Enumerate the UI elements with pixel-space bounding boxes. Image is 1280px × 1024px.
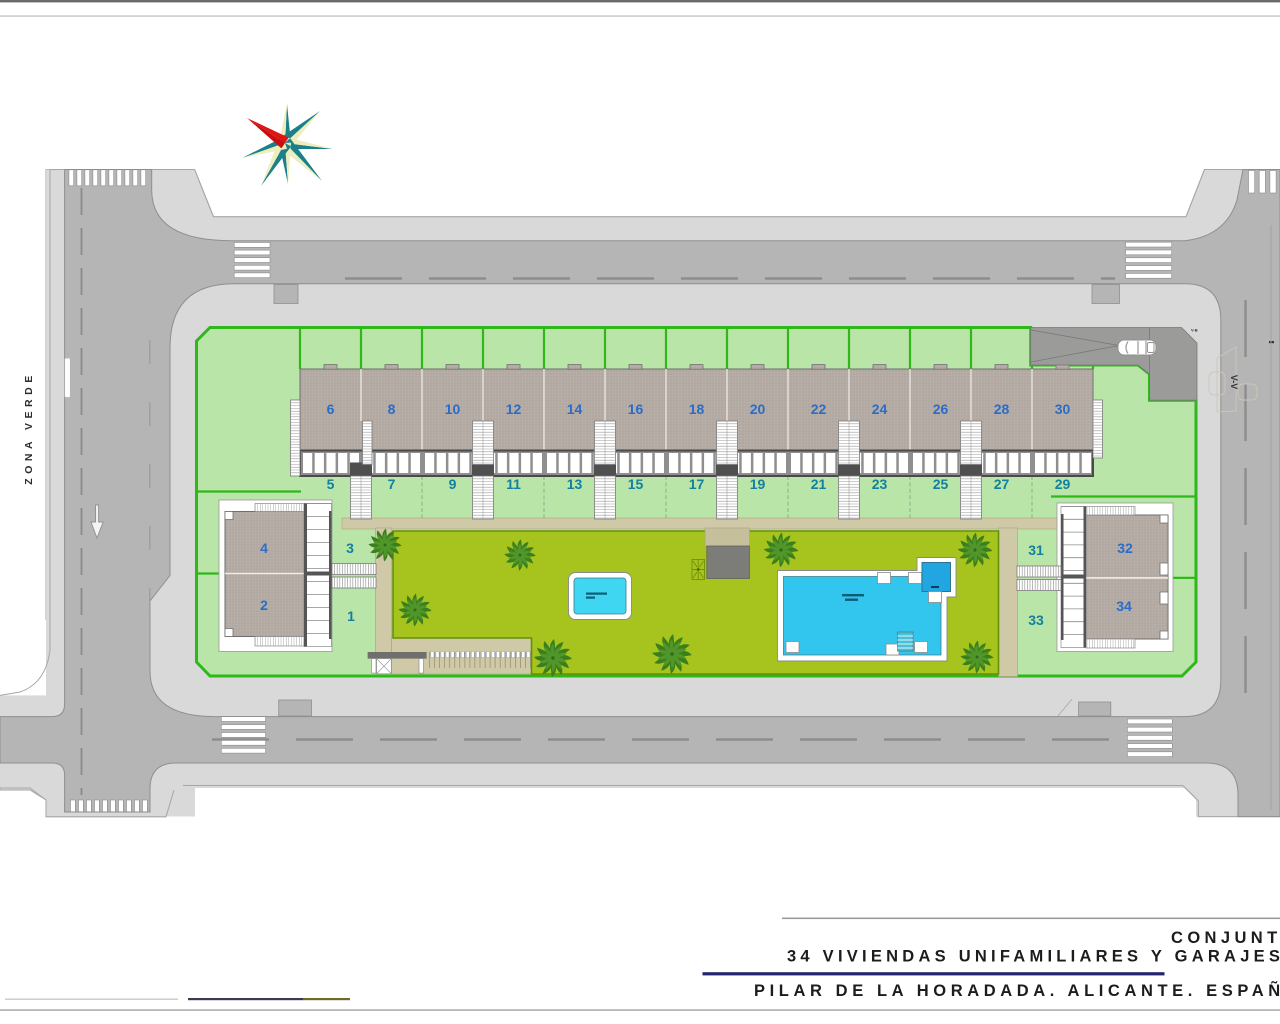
svg-text:30: 30 [1055,401,1071,417]
svg-text:9: 9 [449,476,457,492]
svg-text:26: 26 [933,401,949,417]
svg-text:6: 6 [327,401,335,417]
svg-text:25: 25 [933,476,949,492]
svg-text:5: 5 [327,476,335,492]
svg-text:13: 13 [567,476,583,492]
svg-text:19: 19 [750,476,766,492]
svg-text:29: 29 [1055,476,1071,492]
svg-text:CONJUNTO: CONJUNTO [1171,929,1280,947]
svg-text:V-B: V-B [1191,328,1198,333]
svg-text:11: 11 [506,476,521,492]
svg-text:28: 28 [994,401,1010,417]
svg-text:27: 27 [994,476,1010,492]
svg-text:34: 34 [1116,598,1132,614]
svg-text:33: 33 [1028,612,1044,628]
svg-text:V-V: V-V [1229,375,1239,390]
svg-text:4: 4 [260,540,268,556]
svg-text:23: 23 [872,476,888,492]
svg-text:7: 7 [388,476,396,492]
svg-text:22: 22 [811,401,827,417]
svg-text:24: 24 [872,401,888,417]
svg-text:PILAR DE LA HORADADA. ALICANTE: PILAR DE LA HORADADA. ALICANTE. ESPAÑA [754,980,1280,1000]
svg-text:2: 2 [260,597,268,613]
svg-text:8: 8 [388,401,396,417]
svg-text:21: 21 [811,476,827,492]
svg-text:ZONA VERDE: ZONA VERDE [23,371,35,484]
svg-text:3: 3 [346,540,354,556]
svg-text:15: 15 [628,476,644,492]
svg-text:14: 14 [567,401,583,417]
svg-text:10: 10 [445,401,461,417]
svg-text:34 VIVIENDAS UNIFAMILIARES Y G: 34 VIVIENDAS UNIFAMILIARES Y GARAJES [787,948,1280,966]
svg-text:17: 17 [689,476,705,492]
svg-text:20: 20 [750,401,766,417]
svg-text:1: 1 [347,608,355,624]
svg-text:18: 18 [689,401,705,417]
svg-text:16: 16 [628,401,644,417]
svg-text:12: 12 [506,401,522,417]
svg-text:32: 32 [1117,540,1133,556]
svg-text:31: 31 [1028,542,1044,558]
